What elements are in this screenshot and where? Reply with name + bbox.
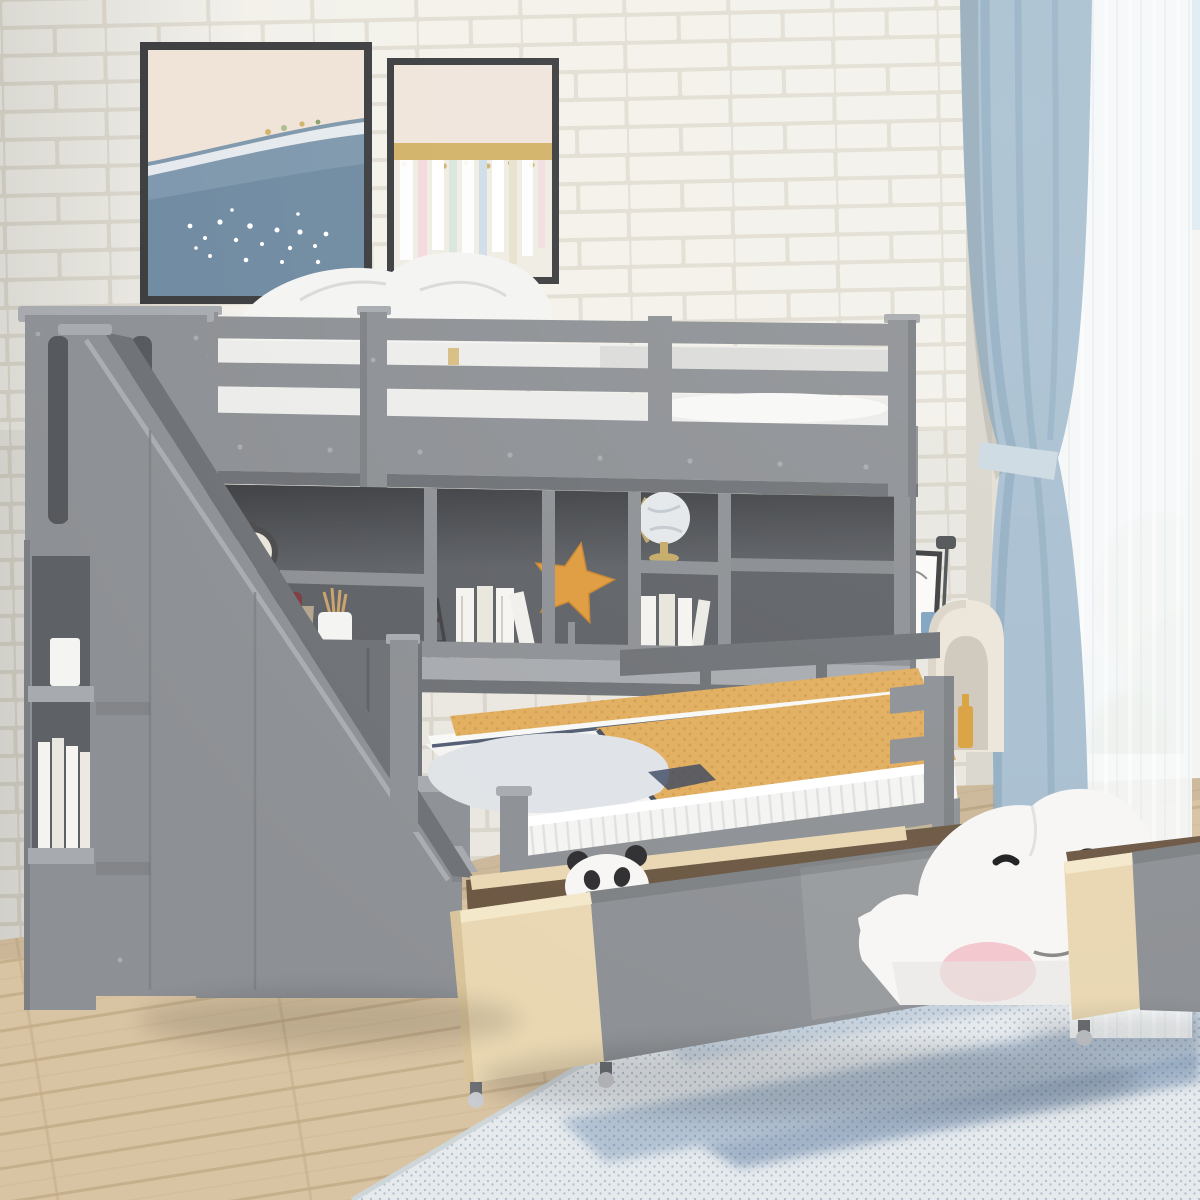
light-glow [0,0,1200,1200]
product-photo [0,0,1200,1200]
